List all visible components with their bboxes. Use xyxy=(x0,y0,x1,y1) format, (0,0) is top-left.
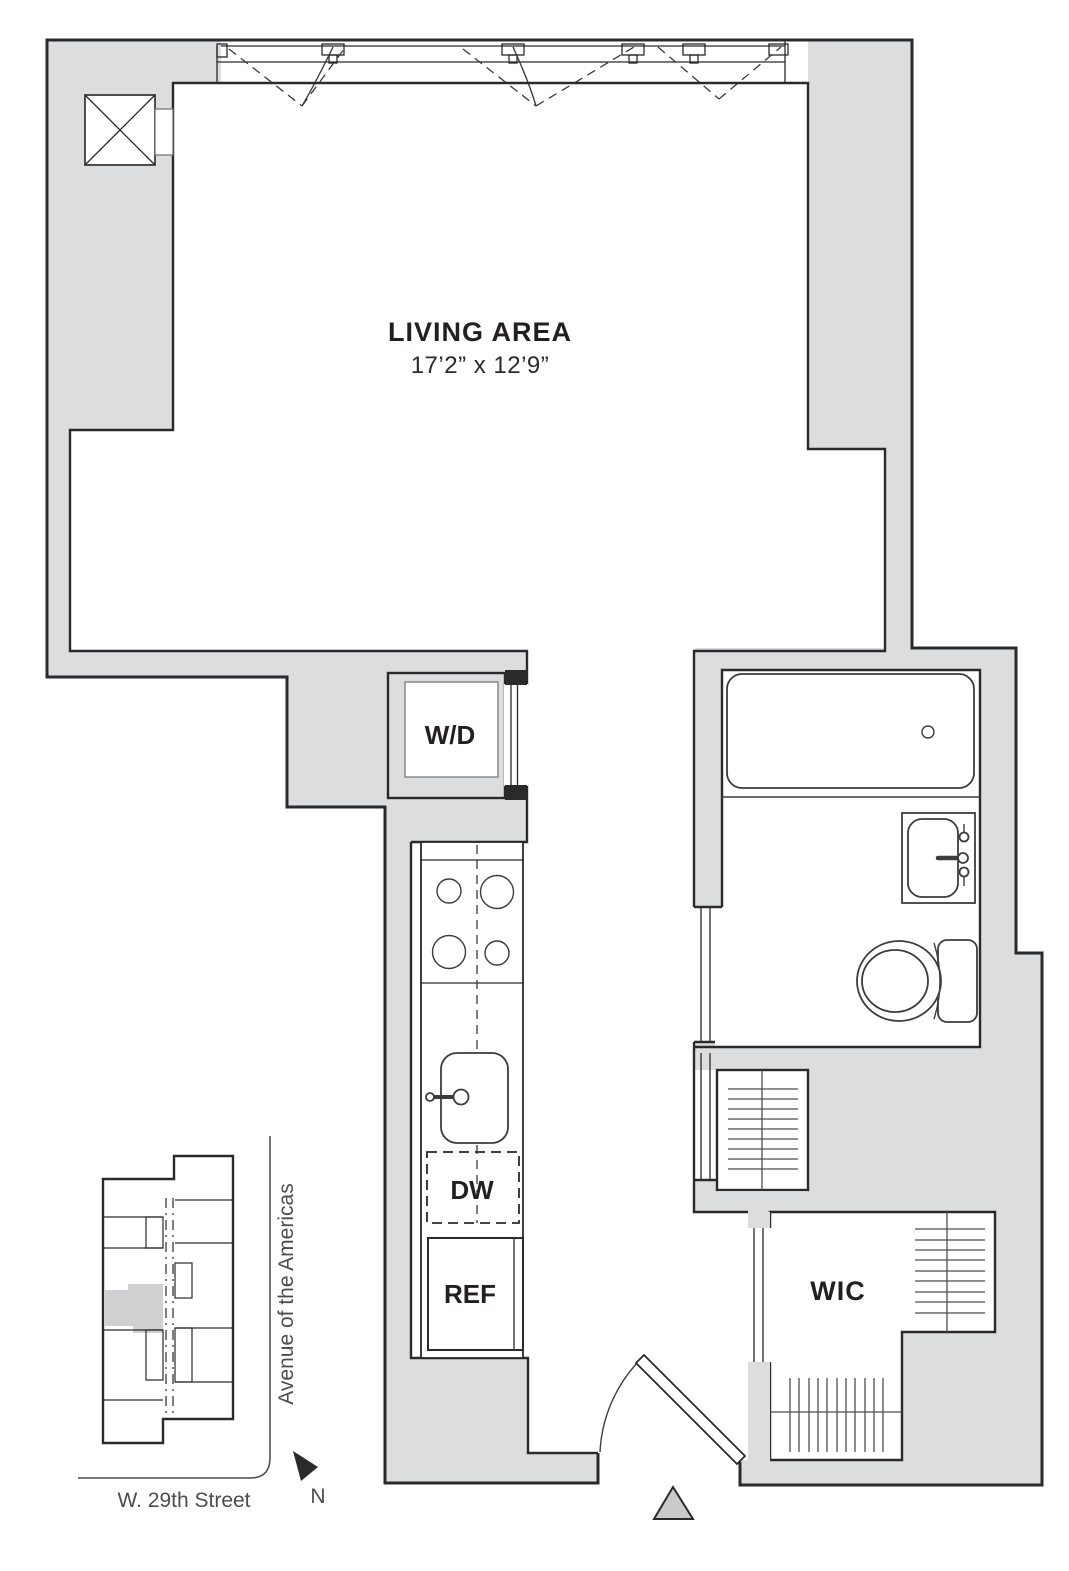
floorplan-svg: W/D DW REF xyxy=(0,0,1069,1571)
north-label: N xyxy=(310,1485,325,1508)
key-plan: Avenue of the Americas W. 29th Street N xyxy=(78,1136,326,1512)
entry-door xyxy=(600,1355,745,1519)
living-area-dimensions: 17’2” x 12’9” xyxy=(411,352,550,379)
door-leaf-icon xyxy=(636,1355,745,1464)
floorplan-page: W/D DW REF xyxy=(0,0,1069,1571)
avenue-label: Avenue of the Americas xyxy=(275,1183,298,1404)
refrigerator-label: REF xyxy=(444,1279,496,1309)
dishwasher-label: DW xyxy=(450,1175,494,1205)
window-mullion-icon xyxy=(217,44,788,63)
washer-dryer-label: W/D xyxy=(425,720,476,750)
living-area-label: LIVING AREA xyxy=(388,317,572,347)
bathroom-sink-icon xyxy=(902,813,975,903)
window-wall xyxy=(217,40,788,106)
entry-marker-icon xyxy=(654,1487,693,1519)
wic-label: WIC xyxy=(810,1276,865,1306)
bathroom xyxy=(701,674,980,1042)
linen-shelves xyxy=(701,1053,808,1190)
wic-shelves-icon xyxy=(915,1212,985,1332)
key-plan-highlighted-unit xyxy=(104,1284,163,1333)
street-label: W. 29th Street xyxy=(117,1489,250,1512)
refrigerator: REF xyxy=(428,1238,523,1350)
kitchen: DW REF xyxy=(421,842,523,1358)
toilet-icon xyxy=(857,940,977,1022)
north-arrow-icon: N xyxy=(293,1451,326,1508)
wic-hanging-rod-icon xyxy=(770,1378,902,1452)
bathtub-icon xyxy=(722,674,980,797)
